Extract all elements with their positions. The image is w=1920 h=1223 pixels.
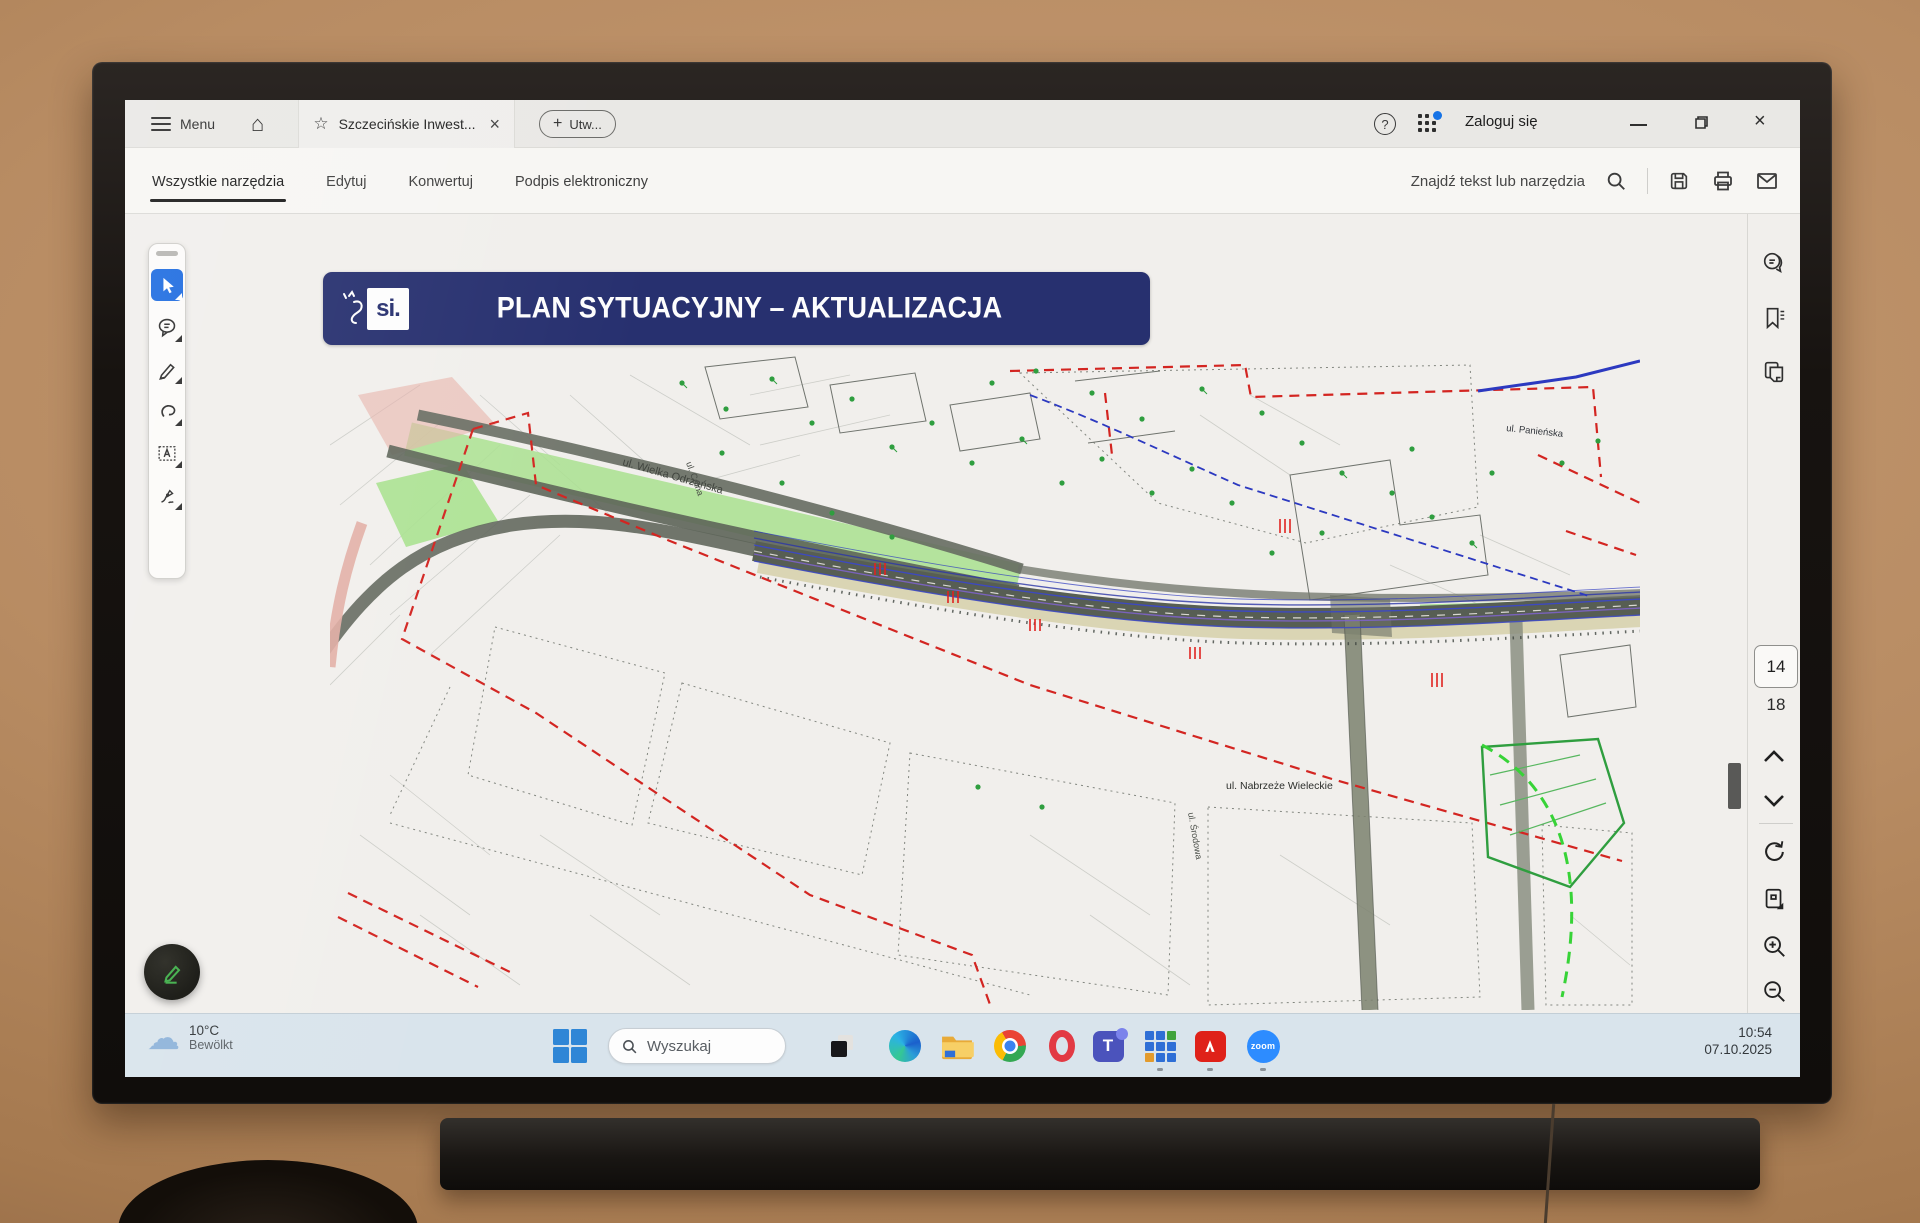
acrobat-titlebar: Menu ⌂ ☆ Szczecińskie Inwest... × + Utw.…: [125, 100, 1800, 148]
start-button[interactable]: [553, 1029, 587, 1063]
weather-condition: Bewölkt: [189, 1038, 233, 1052]
vertical-scrollbar[interactable]: [1728, 763, 1741, 809]
tab-convert[interactable]: Konwertuj: [406, 152, 474, 210]
edit-pen-fab[interactable]: [144, 944, 200, 1000]
task-view-button[interactable]: [824, 1028, 860, 1064]
running-indicator: [1157, 1068, 1163, 1071]
rotate-page-button[interactable]: [1759, 836, 1789, 866]
mail-icon[interactable]: [1754, 168, 1780, 194]
screen: Menu ⌂ ☆ Szczecińskie Inwest... × + Utw.…: [125, 100, 1800, 1077]
search-icon: [621, 1038, 638, 1055]
teams-glyph: T: [1103, 1036, 1113, 1056]
hamburger-menu-icon[interactable]: [151, 117, 171, 131]
tiles-app-icon[interactable]: [1142, 1028, 1178, 1064]
acrobat-icon[interactable]: [1192, 1028, 1228, 1064]
find-tools-button[interactable]: Znajdź tekst lub narzędzia: [1411, 173, 1585, 190]
taskbar-search[interactable]: Wyszukaj: [608, 1028, 786, 1064]
tab-close-icon[interactable]: ×: [490, 114, 501, 135]
tab-esign[interactable]: Podpis elektroniczny: [513, 152, 650, 210]
green-pencil-icon: [159, 959, 185, 985]
export-page-button[interactable]: [1759, 884, 1789, 914]
weather-widget[interactable]: ☁ 10°C Bewölkt: [147, 1021, 233, 1054]
sign-in-button[interactable]: Zaloguj się: [1465, 113, 1538, 130]
menu-button[interactable]: Menu: [180, 116, 215, 132]
toolbar-drag-handle[interactable]: [156, 251, 178, 256]
total-pages-label: 18: [1754, 695, 1798, 715]
select-tool-button[interactable]: [151, 269, 183, 301]
help-button[interactable]: ?: [1374, 113, 1396, 135]
freeform-tool-button[interactable]: [151, 395, 183, 427]
new-tab-label: Utw...: [569, 117, 602, 132]
chrome-icon[interactable]: [992, 1028, 1028, 1064]
close-button[interactable]: ×: [1754, 111, 1766, 131]
restore-button[interactable]: [1691, 114, 1709, 137]
apps-grid-icon[interactable]: [1418, 114, 1440, 136]
help-glyph: ?: [1381, 117, 1388, 132]
zoom-in-button[interactable]: [1759, 931, 1789, 961]
notification-dot: [1433, 111, 1442, 120]
tab-all-tools[interactable]: Wszystkie narzędzia: [150, 152, 286, 210]
text-box-tool-button[interactable]: [151, 437, 183, 469]
save-icon[interactable]: [1666, 168, 1692, 194]
current-page-indicator[interactable]: 14: [1754, 645, 1798, 688]
right-panel-divider: [1747, 214, 1748, 1013]
weather-temperature: 10°C: [189, 1023, 233, 1038]
griffin-logo-icon: [341, 290, 367, 328]
plan-title-banner: si. PLAN SYTUACYJNY – AKTUALIZACJA: [323, 272, 1150, 345]
running-indicator: [1207, 1068, 1213, 1071]
running-indicator: [1260, 1068, 1266, 1071]
cloud-icon: ☁: [147, 1021, 180, 1054]
zoom-glyph: zoom: [1247, 1030, 1280, 1063]
bookmarks-panel-icon[interactable]: [1759, 303, 1789, 333]
search-icon[interactable]: [1603, 168, 1629, 194]
clock-date: 07.10.2025: [1704, 1041, 1772, 1058]
minimize-button[interactable]: [1630, 124, 1647, 126]
quick-tools-toolbar: [148, 243, 186, 579]
document-tab[interactable]: ☆ Szczecińskie Inwest... ×: [298, 100, 515, 148]
page-thumbnails-icon[interactable]: [1759, 357, 1789, 387]
document-tab-title: Szczecińskie Inwest...: [339, 116, 476, 132]
plan-title: PLAN SYTUACYJNY – AKTUALIZACJA: [409, 292, 1090, 325]
draw-tool-button[interactable]: [151, 353, 183, 385]
pagenav-divider: [1759, 823, 1793, 824]
star-icon[interactable]: ☆: [313, 114, 328, 134]
taskbar-clock[interactable]: 10:54 07.10.2025: [1704, 1024, 1772, 1058]
current-page-number: 14: [1767, 657, 1786, 677]
zoom-app-icon[interactable]: zoom: [1245, 1028, 1281, 1064]
toolbar-divider: [1647, 168, 1648, 194]
photo-of-tv-screen: Menu ⌂ ☆ Szczecińskie Inwest... × + Utw.…: [0, 0, 1920, 1223]
home-icon[interactable]: ⌂: [251, 113, 264, 135]
new-tab-button[interactable]: + Utw...: [539, 110, 616, 138]
tab-edit[interactable]: Edytuj: [324, 152, 368, 210]
edge-icon[interactable]: [887, 1028, 923, 1064]
zoom-out-button[interactable]: [1759, 976, 1789, 1006]
clock-time: 10:54: [1704, 1024, 1772, 1041]
next-page-button[interactable]: [1759, 786, 1789, 816]
document-canvas: si. PLAN SYTUACYJNY – AKTUALIZACJA: [125, 214, 1800, 1013]
comment-tool-button[interactable]: [151, 311, 183, 343]
street-label-nabrzeze-wieleckie: ul. Nabrzeże Wieleckie: [1226, 780, 1333, 792]
tv-frame: Menu ⌂ ☆ Szczecińskie Inwest... × + Utw.…: [92, 62, 1832, 1104]
plus-icon: +: [553, 115, 562, 133]
comments-panel-icon[interactable]: [1759, 248, 1789, 278]
foreground-silhouette: [118, 1160, 418, 1223]
si-logo: si.: [367, 288, 409, 330]
acrobat-toolbar: Wszystkie narzędzia Edytuj Konwertuj Pod…: [125, 148, 1800, 214]
site-plan-drawing: ul. Wielka Odrzańska ul. Celna ul. Panie…: [330, 355, 1640, 1010]
teams-icon[interactable]: T: [1090, 1028, 1126, 1064]
sign-tool-button[interactable]: [151, 479, 183, 511]
street-label-srodowa: ul. Środowa: [1186, 811, 1205, 860]
street-label-panienska: ul. Panieńska: [1506, 423, 1565, 440]
windows-taskbar: ☁ 10°C Bewölkt Wyszukaj: [125, 1013, 1800, 1077]
soundbar: [440, 1118, 1760, 1190]
print-icon[interactable]: [1710, 168, 1736, 194]
search-placeholder: Wyszukaj: [647, 1038, 711, 1055]
previous-page-button[interactable]: [1759, 741, 1789, 771]
opera-icon[interactable]: [1044, 1028, 1080, 1064]
file-explorer-icon[interactable]: [939, 1028, 975, 1064]
